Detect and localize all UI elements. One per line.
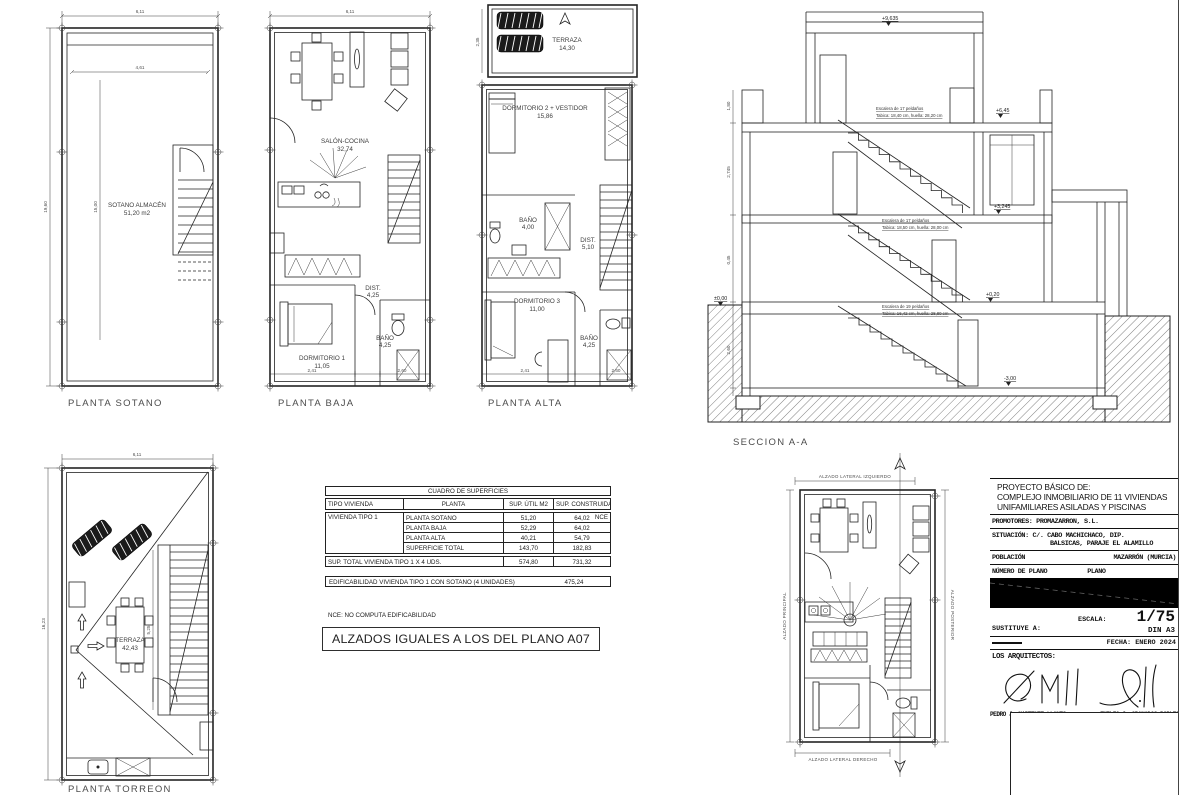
section-a-a: +9,635 +6,45 +3,245 +0,20 ±0,00 -3,00 Es… [700, 0, 1179, 460]
svg-text:-3,00: -3,00 [1004, 376, 1016, 382]
project-description: PROYECTO BÁSICO DE: COMPLEJO INMOBILIARI… [990, 479, 1179, 514]
sotano-title: PLANTA SOTANO [68, 398, 163, 409]
svg-text:Escalera de 17 peldaños: Escalera de 17 peldaños [876, 106, 923, 111]
torreon-dimension-lines [44, 454, 213, 780]
paper-format: DIN A3 [1148, 627, 1175, 635]
svg-text:2,60: 2,60 [612, 368, 621, 373]
alzados-furniture [805, 499, 929, 579]
surfaces-table-body: VIVIENDA TIPO 1 PLANTA SOTANO 51,20 64,0… [325, 512, 611, 554]
svg-text:Tabica: 18,50 cm, huella: 28,0: Tabica: 18,50 cm, huella: 28,00 cm [882, 225, 949, 230]
alta-bano2-label: BAÑO [580, 333, 598, 342]
baja-kitchen [278, 148, 366, 207]
alta-dist-label: DIST. [580, 237, 596, 244]
arquitectos-label: LOS ARQUITECTOS: [990, 650, 1179, 663]
sotano-room-area: 51,20 m2 [124, 210, 151, 217]
edificabilidad-row: EDIFICABILIDAD VIVIENDA TIPO 1 CON SOTAN… [325, 576, 611, 587]
svg-text:±0,00: ±0,00 [714, 296, 727, 302]
svg-text:5,25: 5,25 [146, 625, 151, 634]
alta-bano1-label: BAÑO [519, 215, 537, 224]
promotores: PROMOTORES: PROMAZARRON, S.L. [990, 515, 1179, 528]
baja-wardrobe [270, 233, 360, 277]
alta-dorm3-label: DORMITORIO 3 [514, 298, 561, 305]
alzados-bedroom [813, 682, 859, 730]
torreon-cabinet [69, 582, 85, 607]
svg-text:Escalera de 17 peldaños: Escalera de 17 peldaños [882, 218, 929, 223]
plan-sotano: 6,11 19,60 4,61 15,00 SOTANO ALMACÉN 51,… [40, 0, 240, 415]
north-arrow-icon [560, 13, 570, 24]
surfaces-table-title: CUADRO DE SUPERFICIES [325, 486, 611, 496]
torreon-terraza-label: TERRAZA [115, 637, 145, 644]
baja-bano-label: BAÑO [376, 333, 394, 342]
svg-text:2,41: 2,41 [521, 368, 530, 373]
table-row: PLANTA SOTANO 51,20 64,02NCE [404, 513, 610, 523]
svg-text:0,45: 0,45 [726, 255, 731, 264]
title-block-empty-box [1010, 712, 1179, 795]
alta-dorm2-label: DORMITORIO 2 + VESTIDOR [502, 105, 588, 112]
surfaces-table-header: TIPO VIVIENDA PLANTA SUP. ÚTIL M2 SUP. C… [326, 499, 610, 509]
svg-text:4,25: 4,25 [379, 342, 392, 349]
sotano-dim-width: 6,11 [136, 9, 145, 14]
torreon-title: PLANTA TORREON [68, 784, 172, 795]
svg-text:15,86: 15,86 [537, 113, 553, 120]
svg-text:Tabica: 18,40 cm, huella: 28,2: Tabica: 18,40 cm, huella: 28,20 cm [876, 113, 943, 118]
svg-text:Tabica: 16,42 cm, huella: 28,8: Tabica: 16,42 cm, huella: 28,80 cm [882, 311, 949, 316]
baja-stairs [388, 155, 420, 243]
svg-text:+0,20: +0,20 [986, 292, 999, 298]
svg-text:42,43: 42,43 [122, 645, 138, 652]
plan-baja: 6,11 2,41 2,60 [250, 0, 450, 415]
svg-text:5,10: 5,10 [582, 244, 595, 251]
svg-text:15,00: 15,00 [93, 201, 98, 213]
sotano-stairs [173, 145, 213, 280]
svg-text:14,30: 14,30 [559, 45, 575, 52]
sotano-dimension-lines [46, 11, 220, 386]
alta-dimension-lines [482, 371, 632, 377]
table-row: SUPERFICIE TOTAL 143,70 182,83 [404, 543, 610, 553]
title-block: PROYECTO BÁSICO DE: COMPLEJO INMOBILIARI… [990, 478, 1179, 725]
baja-bedroom [280, 295, 375, 346]
redacted-plan-number [990, 578, 1179, 608]
svg-text:16,23: 16,23 [41, 618, 46, 630]
svg-text:4,61: 4,61 [136, 65, 145, 70]
svg-text:2,60: 2,60 [726, 345, 731, 354]
section-level-markers: +9,635 +6,45 +3,245 +0,20 ±0,00 -3,00 [714, 16, 1016, 386]
baja-furniture [270, 32, 408, 143]
alzados-wardrobe [811, 632, 867, 662]
baja-dist-label: DIST. [365, 285, 381, 292]
fecha-row: FECHA: ENERO 2024 [990, 637, 1179, 649]
label-alzado-lateral-derecho: ALZADO LATERAL DERECHO [808, 757, 877, 762]
label-alzado-posterior: ALZADO POSTERIOR [950, 590, 955, 641]
nce-flag: NCE [595, 513, 608, 522]
architect-signatures [996, 663, 1176, 711]
alzados-winder-stair [814, 582, 886, 626]
section-title: SECCION A-A [733, 437, 809, 448]
lounger-icon [71, 518, 153, 561]
svg-text:11,00: 11,00 [529, 306, 545, 313]
alta-walls [482, 85, 632, 386]
sotano-dim-height: 19,60 [43, 201, 48, 213]
alzados-stairs [870, 598, 911, 700]
plan-alzados-reference: ALZADO LATERAL IZQUIERDO ALZADO LATERAL … [775, 450, 985, 780]
alzados-note-box: ALZADOS IGUALES A LOS DEL PLANO A07 [322, 627, 600, 651]
svg-text:1,80: 1,80 [726, 101, 731, 110]
table-row: PLANTA ALTA 40,21 54,79 [404, 533, 610, 543]
svg-text:11,05: 11,05 [314, 363, 330, 370]
surfaces-table: CUADRO DE SUPERFICIES TIPO VIVIENDA PLAN… [325, 486, 611, 587]
alta-title: PLANTA ALTA [488, 398, 563, 409]
torreon-stairs [153, 545, 208, 715]
svg-text:4,25: 4,25 [367, 292, 380, 299]
alta-dorm2 [489, 88, 630, 160]
alzados-bathroom [893, 697, 917, 737]
label-alzado-principal: ALZADO PRINCIPAL [782, 592, 787, 640]
surfaces-table-total: SUP. TOTAL VIVIENDA TIPO 1 X 4 UDS. 574,… [325, 556, 611, 567]
alta-axis-targets [477, 80, 638, 392]
sotano-room-label: SOTANO ALMACÉN [108, 200, 166, 209]
label-alzado-lateral-izquierdo: ALZADO LATERAL IZQUIERDO [819, 474, 891, 479]
alta-terraza-label: TERRAZA [552, 37, 582, 44]
svg-text:+9,635: +9,635 [882, 16, 898, 22]
svg-text:4,25: 4,25 [583, 342, 596, 349]
section-structure [742, 12, 1127, 396]
svg-text:4,00: 4,00 [522, 224, 535, 231]
svg-text:2,745: 2,745 [726, 166, 731, 178]
situacion: SITUACIÓN: C/. CABO MACHICHACO, DIP. BAL… [990, 529, 1179, 550]
section-stair-notes: Escalera de 17 peldaños Tabica: 18,40 cm… [876, 106, 949, 316]
drawing-sheet: 6,11 19,60 4,61 15,00 SOTANO ALMACÉN 51,… [0, 0, 1179, 795]
svg-text:+6,45: +6,45 [996, 108, 1009, 114]
torreon-bottom-fixtures [88, 722, 213, 776]
svg-text:Escalera de 19 peldaños: Escalera de 19 peldaños [882, 304, 929, 309]
section-stairs [838, 120, 970, 388]
table-row: PLANTA BAJA 52,29 64,02 [404, 523, 610, 533]
torreon-arrows [78, 614, 104, 688]
torreon-diagonals [71, 472, 208, 755]
poblacion-row: POBLACIÓN MAZARRÓN (MURCIA) [990, 551, 1179, 564]
lounger-icon [497, 12, 543, 52]
escala-row: SUSTITUYE A: ESCALA: 1/75 DIN A3 [990, 608, 1179, 636]
baja-salon-label: SALÓN-COCINA [321, 136, 370, 145]
plan-torreon: 6,11 16,23 5,25 [40, 450, 240, 795]
scale-value: 1/75 [1137, 608, 1175, 626]
svg-text:2,35: 2,35 [475, 37, 480, 46]
svg-text:32,74: 32,74 [337, 146, 353, 153]
section-ground-hatch [708, 305, 1170, 422]
svg-text:6,11: 6,11 [133, 452, 142, 457]
svg-text:6,11: 6,11 [346, 9, 355, 14]
svg-text:+3,245: +3,245 [994, 204, 1010, 210]
baja-dorm1-label: DORMITORIO 1 [299, 355, 346, 362]
alta-bano1 [488, 203, 570, 278]
baja-title: PLANTA BAJA [278, 398, 354, 409]
plan-alta: 2,35 TERRAZA 14,30 [470, 0, 670, 415]
numero-plano-row: NÚMERO DE PLANO PLANO [990, 565, 1179, 578]
nce-note: NCE: NO COMPUTA EDIFICABILIDAD [328, 612, 436, 619]
